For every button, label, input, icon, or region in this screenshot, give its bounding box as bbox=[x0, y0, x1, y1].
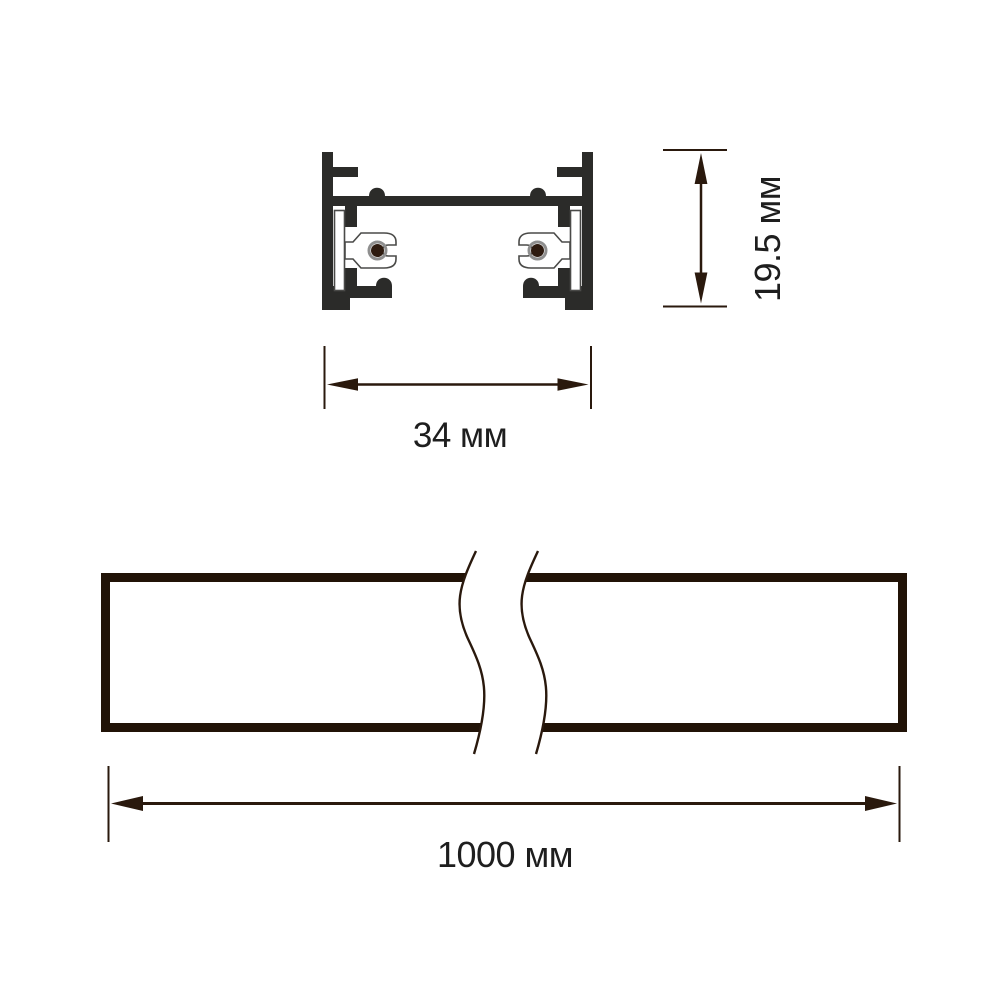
profile-right-half bbox=[519, 152, 593, 310]
drawing-canvas: 19.5 мм 34 мм 1000 мм bbox=[0, 0, 1000, 1000]
length-dimension bbox=[109, 766, 900, 842]
width-dimension bbox=[325, 346, 592, 409]
length-arrowhead-left bbox=[111, 796, 143, 811]
height-arrowhead-bottom bbox=[695, 273, 708, 304]
profile-web-bump-right bbox=[530, 188, 546, 196]
profile-web-bump-left bbox=[369, 188, 385, 196]
height-dimension-label: 19.5 мм bbox=[748, 154, 788, 324]
profile-left-half bbox=[322, 152, 396, 310]
rail-side-view bbox=[106, 551, 903, 754]
length-dimension-label: 1000 мм bbox=[385, 833, 625, 877]
length-arrowhead-right bbox=[865, 796, 897, 811]
profile-cross-section bbox=[322, 152, 593, 310]
height-dimension bbox=[663, 150, 727, 307]
height-arrowhead-top bbox=[695, 153, 708, 184]
width-dimension-label: 34 мм bbox=[360, 414, 560, 458]
width-arrowhead-left bbox=[327, 378, 358, 391]
profile-top-web bbox=[330, 196, 585, 206]
width-arrowhead-right bbox=[558, 378, 589, 391]
